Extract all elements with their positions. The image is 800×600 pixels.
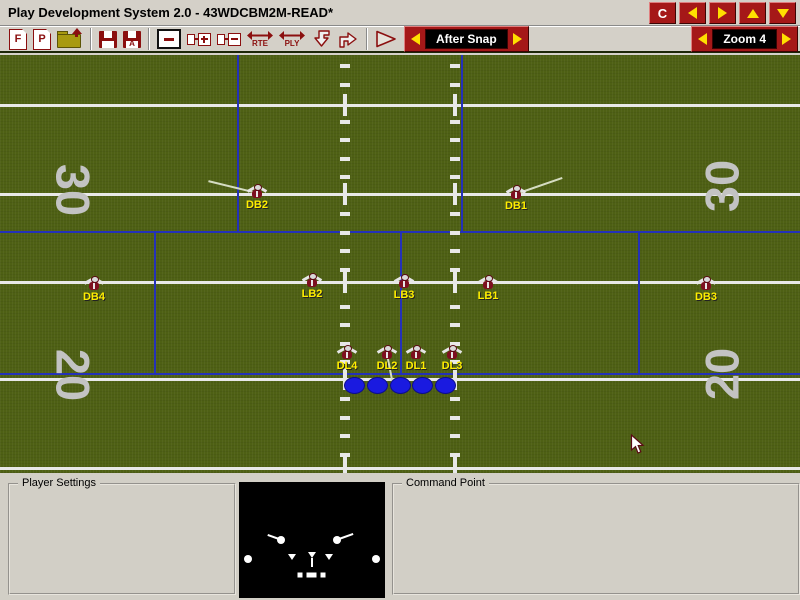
player-stripe <box>403 281 405 287</box>
nav-left-button[interactable] <box>679 2 706 24</box>
player-label-DL1[interactable]: DL1 <box>406 360 427 372</box>
offensive-lineman-1[interactable] <box>344 377 365 394</box>
player-sprite-DL1[interactable] <box>407 346 425 360</box>
hash-mark <box>340 175 350 179</box>
new-formation-icon: F <box>9 29 27 50</box>
toolbar-separator <box>366 28 368 50</box>
arrow-down-icon <box>311 29 331 49</box>
nav-right-button[interactable] <box>709 2 736 24</box>
preview-player-square <box>298 573 303 578</box>
save-as-icon: A <box>123 31 141 48</box>
play-letter: P <box>38 34 45 45</box>
route-mode-icon: RTE <box>247 31 273 48</box>
player-stripe <box>705 283 707 289</box>
hash-mark <box>450 83 460 87</box>
player-sprite-DB4[interactable] <box>85 277 103 291</box>
player-helmet-icon <box>254 184 262 191</box>
toolbar-separator <box>148 28 150 50</box>
zoom-value: Zoom 4 <box>712 29 777 49</box>
player-helmet-icon <box>485 275 493 282</box>
player-label-DB4[interactable]: DB4 <box>83 291 105 303</box>
yard-number-30-right: 30 <box>699 160 746 212</box>
hash-mark <box>340 323 350 327</box>
command-point-groupbox: Command Point <box>392 483 800 595</box>
yard-number-20-left: 20 <box>50 349 97 401</box>
save-icon <box>99 31 117 48</box>
remove-box-icon <box>157 29 181 49</box>
player-stripe <box>451 352 453 358</box>
toolbar: F P A RTE <box>0 26 800 53</box>
player-helmet-icon <box>309 273 317 280</box>
hash-mark <box>450 231 460 235</box>
player-helmet-icon <box>449 345 457 352</box>
player-sprite-DL2[interactable] <box>378 346 396 360</box>
player-sprite-DB1[interactable] <box>507 186 525 200</box>
remove-node-icon <box>217 33 241 46</box>
hash-tick <box>453 271 457 293</box>
hash-mark <box>450 138 460 142</box>
player-stripe <box>311 280 313 286</box>
formation-letter: F <box>15 34 22 45</box>
player-helmet-icon <box>384 345 392 352</box>
titlebar-buttons: C <box>649 2 796 24</box>
ply-label: PLY <box>285 40 300 48</box>
player-sprite-DL3[interactable] <box>443 346 461 360</box>
zoom-selector: Zoom 4 <box>691 26 798 52</box>
mouse-cursor <box>630 434 645 460</box>
hash-mark <box>450 434 460 438</box>
field-canvas[interactable]: 30302020DB2DB1DB4LB2LB3LB1DB3DL4DL2DL1DL… <box>0 55 800 473</box>
open-folder-icon <box>57 29 83 49</box>
hash-mark <box>450 305 460 309</box>
blue-zone-line-vertical <box>237 55 239 232</box>
command-button[interactable]: C <box>649 2 676 24</box>
yard-line <box>0 104 800 107</box>
route-right-button[interactable] <box>337 27 359 51</box>
nav-up-button[interactable] <box>739 2 766 24</box>
player-helmet-icon <box>344 345 352 352</box>
zoom-in-button[interactable] <box>782 33 791 45</box>
arrow-right-icon <box>337 29 359 49</box>
toolbar-separator <box>90 28 92 50</box>
hash-tick <box>343 183 347 205</box>
play-preview-minimap[interactable] <box>239 482 385 598</box>
player-helmet-icon <box>413 345 421 352</box>
hash-mark <box>340 434 350 438</box>
offensive-lineman-5[interactable] <box>435 377 456 394</box>
preview-route-line <box>311 558 313 567</box>
save-as-button[interactable]: A <box>123 27 141 51</box>
player-label-DL2[interactable]: DL2 <box>377 360 398 372</box>
preview-player-square <box>312 573 317 578</box>
hash-mark <box>340 397 350 401</box>
preview-player-triangle <box>288 554 296 560</box>
rte-label: RTE <box>252 40 268 48</box>
hash-mark <box>340 212 350 216</box>
hash-mark <box>450 64 460 68</box>
run-play-button[interactable] <box>375 27 397 51</box>
left-arrow-icon <box>688 7 697 19</box>
yard-number-20-right: 20 <box>699 348 746 400</box>
player-sprite-DB2[interactable] <box>248 185 266 199</box>
hash-mark <box>450 397 460 401</box>
phase-value: After Snap <box>425 29 508 49</box>
preview-player-dot <box>244 555 252 563</box>
hash-mark <box>450 453 460 457</box>
preview-player-dot <box>277 536 285 544</box>
right-arrow-icon <box>718 7 727 19</box>
open-button[interactable] <box>57 27 83 51</box>
player-sprite-LB2[interactable] <box>303 274 321 288</box>
player-stripe <box>515 192 517 198</box>
new-formation-button[interactable]: F <box>9 27 27 51</box>
yard-line <box>0 467 800 470</box>
add-node-button[interactable] <box>187 27 211 51</box>
phase-selector: After Snap <box>404 26 529 52</box>
player-helmet-icon <box>91 276 99 283</box>
player-settings-groupbox: Player Settings <box>8 483 236 595</box>
preview-player-triangle <box>325 554 333 560</box>
player-stripe <box>386 352 388 358</box>
command-button-label: C <box>658 7 667 20</box>
hash-tick <box>343 271 347 293</box>
hash-mark <box>340 138 350 142</box>
bottom-panel: Player Settings Command Point <box>0 473 800 600</box>
hash-mark <box>450 120 460 124</box>
hash-mark <box>450 175 460 179</box>
hash-tick <box>343 94 347 116</box>
command-point-label: Command Point <box>402 477 489 489</box>
hash-mark <box>340 157 350 161</box>
hash-mark <box>450 212 460 216</box>
yard-number-30-left: 30 <box>50 164 97 216</box>
app-window: { "window": { "title": "Play Development… <box>0 0 800 600</box>
hash-mark <box>450 323 460 327</box>
player-stripe <box>256 191 258 197</box>
blue-zone-line-vertical <box>461 55 463 232</box>
blue-zone-line-vertical <box>638 232 640 374</box>
hash-mark <box>340 83 350 87</box>
new-play-button[interactable]: P <box>33 27 51 51</box>
save-as-letter: A <box>129 40 135 48</box>
hash-mark <box>340 120 350 124</box>
preview-player-dot <box>333 536 341 544</box>
nav-down-button[interactable] <box>769 2 796 24</box>
player-label-DB1[interactable]: DB1 <box>505 200 527 212</box>
player-sprite-DB3[interactable] <box>697 277 715 291</box>
offensive-lineman-3[interactable] <box>390 377 411 394</box>
player-sprite-LB1[interactable] <box>479 276 497 290</box>
hash-mark <box>450 249 460 253</box>
player-label-DL3[interactable]: DL3 <box>442 360 463 372</box>
up-arrow-icon <box>747 9 759 18</box>
offensive-lineman-2[interactable] <box>367 377 388 394</box>
hash-tick <box>343 457 347 473</box>
player-label-DL4[interactable]: DL4 <box>337 360 358 372</box>
player-stripe <box>93 283 95 289</box>
hash-mark <box>340 231 350 235</box>
player-helmet-icon <box>703 276 711 283</box>
preview-player-dot <box>372 555 380 563</box>
player-sprite-LB3[interactable] <box>395 275 413 289</box>
player-helmet-icon <box>513 185 521 192</box>
new-play-icon: P <box>33 29 51 50</box>
player-settings-label: Player Settings <box>18 477 100 489</box>
player-stripe <box>346 352 348 358</box>
preview-player-triangle <box>308 552 316 558</box>
hash-mark <box>340 453 350 457</box>
remove-box-button[interactable] <box>157 27 181 51</box>
hash-tick <box>453 94 457 116</box>
player-stripe <box>487 282 489 288</box>
player-stripe <box>415 352 417 358</box>
hash-tick <box>453 183 457 205</box>
player-label-DB3[interactable]: DB3 <box>695 291 717 303</box>
player-label-LB2[interactable]: LB2 <box>302 288 323 300</box>
phase-next-button[interactable] <box>513 33 522 45</box>
hash-mark <box>450 416 460 420</box>
blue-zone-line-vertical <box>154 232 156 374</box>
player-helmet-icon <box>401 274 409 281</box>
player-sprite-DL4[interactable] <box>338 346 356 360</box>
window-title: Play Development System 2.0 - 43WDCBM2M-… <box>0 5 333 20</box>
route-mode-button[interactable]: RTE <box>247 27 273 51</box>
hash-mark <box>340 305 350 309</box>
play-mode-icon: PLY <box>279 31 305 48</box>
yard-line <box>0 193 800 196</box>
play-mode-button[interactable]: PLY <box>279 27 305 51</box>
title-bar: Play Development System 2.0 - 43WDCBM2M-… <box>0 0 800 26</box>
add-node-icon <box>187 33 211 46</box>
phase-prev-button[interactable] <box>411 33 420 45</box>
remove-node-button[interactable] <box>217 27 241 51</box>
run-play-icon <box>375 30 397 48</box>
down-arrow-icon <box>777 9 789 18</box>
offensive-lineman-4[interactable] <box>412 377 433 394</box>
zoom-out-button[interactable] <box>698 33 707 45</box>
hash-mark <box>450 157 460 161</box>
hash-tick <box>453 457 457 473</box>
player-label-DB2[interactable]: DB2 <box>246 199 268 211</box>
preview-player-square <box>321 573 326 578</box>
player-label-LB1[interactable]: LB1 <box>478 290 499 302</box>
blue-zone-line-vertical <box>400 232 402 374</box>
player-label-LB3[interactable]: LB3 <box>394 289 415 301</box>
route-down-button[interactable] <box>311 27 331 51</box>
hash-mark <box>340 249 350 253</box>
hash-mark <box>340 64 350 68</box>
save-button[interactable] <box>99 27 117 51</box>
hash-mark <box>340 416 350 420</box>
